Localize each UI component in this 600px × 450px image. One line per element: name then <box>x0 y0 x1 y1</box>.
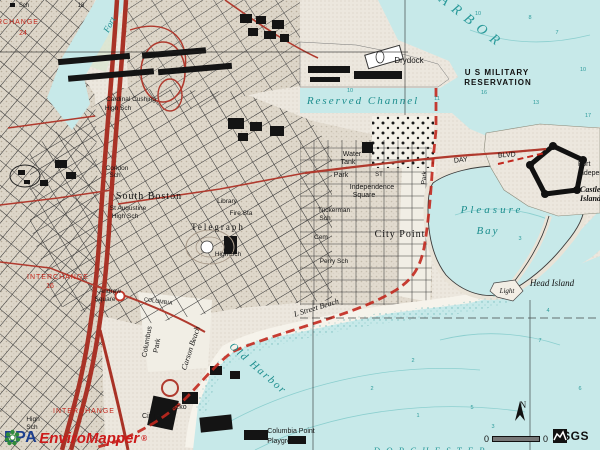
map-label-high-sch-hill: High Sch <box>215 251 242 258</box>
map-label-interchange-s: INTERCHANGE <box>53 408 115 415</box>
map-label-fort-independence-2: Independence <box>578 170 600 177</box>
map-label-pleasure: Pleasure <box>460 204 524 216</box>
map-label-military-2: RESERVATION <box>464 78 531 87</box>
map-label-st-abbrev: ST <box>375 172 383 178</box>
map-label-cem: Cem <box>314 234 328 241</box>
map-label-d9: 2 <box>411 358 414 364</box>
map-label-d10: 5 <box>470 405 473 411</box>
map-label-military-1: U S MILITARY <box>465 68 529 77</box>
map-label-condon-1: Condon <box>106 165 129 172</box>
map-label-d11: 1 <box>416 413 419 419</box>
map-label-interchange-16-2: 16 <box>46 283 54 290</box>
map-label-cushing-1: Cardinal Cushing <box>106 96 156 103</box>
map-label-augustine-2: High Sch <box>112 213 139 220</box>
map-label-independence-sq-1: Independence <box>350 184 394 191</box>
map-label-d3: 16 <box>481 90 487 96</box>
map-label-d1: 10 <box>347 88 353 94</box>
map-label-d7: 8 <box>528 15 531 21</box>
map-label-city-point: City Point <box>375 229 426 240</box>
topo-map: HARBORReserved ChannelFortPleasureBayOld… <box>0 0 600 450</box>
map-label-high-sch-w1: High <box>26 416 40 423</box>
map-label-d14: 4 <box>546 308 549 314</box>
map-label-kosciuszko-1: Kosciuszko <box>151 404 187 411</box>
map-label-d16: 2 <box>370 386 373 392</box>
enviromapper-wordmark: EnviroMapper <box>39 430 139 447</box>
map-label-dorchester-bay: DORCHESTER <box>373 446 491 450</box>
map-label-bay: Bay <box>476 225 499 237</box>
north-arrow-icon <box>514 401 526 423</box>
map-label-light: Light <box>499 287 516 295</box>
usgs-mountain-icon <box>553 429 567 443</box>
epa-enviromapper-logo: EPA EnviroMapper ® <box>4 429 147 447</box>
map-label-day-blvd-1: DAY <box>454 156 469 164</box>
map-label-d15: 3 <box>518 236 521 242</box>
map-label-columbia-point-1: Columbia Point <box>267 428 315 435</box>
map-label-water-tank-2: Tank <box>341 159 356 166</box>
map-label-tuckerman-2: Sch <box>319 215 331 222</box>
scale-right-label: 0 <box>543 434 548 444</box>
map-label-castle-island-1: Castle <box>580 185 600 194</box>
scale-bar: 0 0 <box>484 434 548 444</box>
map-label-head-island: Head Island <box>529 278 575 288</box>
map-label-fire-sta: Fire Sta <box>230 210 253 217</box>
map-label-sch-top: Sch <box>19 3 29 9</box>
map-label-andrew-1: Andrew <box>99 288 121 295</box>
map-label-water-tank-1: Water <box>343 151 362 158</box>
map-label-d18: 10 <box>580 67 586 73</box>
monument-circle <box>201 241 213 253</box>
north-arrow: N <box>514 401 532 409</box>
map-label-d12: 3 <box>491 424 494 430</box>
map-label-d13: 7 <box>538 338 541 344</box>
map-label-interchange-nw: INTERCHANGE <box>0 19 39 26</box>
map-label-d5: 17 <box>585 113 591 119</box>
map-label-kosciuszko-2: Circle <box>142 413 160 420</box>
map-label-d6: 10 <box>475 11 481 17</box>
map-label-condon-2: Sch <box>109 172 121 179</box>
map-label-interchange-24: 24 <box>19 30 27 37</box>
map-label-telegraph-hill: Telegraph <box>191 222 245 232</box>
map-label-park-st: Park <box>334 172 349 179</box>
map-label-castle-island-2: Island <box>579 194 600 203</box>
map-label-d4: 13 <box>533 100 539 106</box>
map-label-d17: 6 <box>578 386 581 392</box>
map-label-d8: 7 <box>555 30 558 36</box>
scale-left-label: 0 <box>484 434 489 444</box>
map-label-south-boston: South Boston <box>116 191 182 202</box>
map-label-d2: 11 <box>434 96 440 102</box>
map-label-interchange-16-1: INTERCHANGE <box>27 274 89 281</box>
map-label-columbia-point-2: Playground <box>267 438 303 445</box>
map-label-fort-independence-1: Fort <box>578 161 591 168</box>
map-label-day-blvd-2: BLVD <box>498 151 516 159</box>
registered-mark: ® <box>141 434 147 443</box>
kosciuszko-rotary <box>162 380 178 396</box>
map-label-cushing-2: High Sch <box>105 105 132 112</box>
map-label-reserved-channel: Reserved Channel <box>306 95 419 107</box>
map-label-park-road: Park <box>420 170 428 185</box>
scale-bar-rule <box>492 436 540 442</box>
map-label-augustine-1: St Augustine <box>110 205 147 212</box>
epa-flower-icon <box>4 429 21 446</box>
map-label-independence-sq-2: Square <box>353 192 376 199</box>
usgs-logo: USGS <box>553 429 589 443</box>
map-label-andrew-2: Square <box>95 296 116 303</box>
map-label-tuckerman-1: Tuckerman <box>318 207 351 214</box>
map-label-drydock: Drydock <box>394 56 424 65</box>
map-label-perry-sch: Perry Sch <box>320 258 349 265</box>
map-label-rte-18: 18 <box>78 3 85 9</box>
topo-map-canvas: HARBORReserved ChannelFortPleasureBayOld… <box>0 0 600 450</box>
map-label-library: Library <box>217 198 238 205</box>
